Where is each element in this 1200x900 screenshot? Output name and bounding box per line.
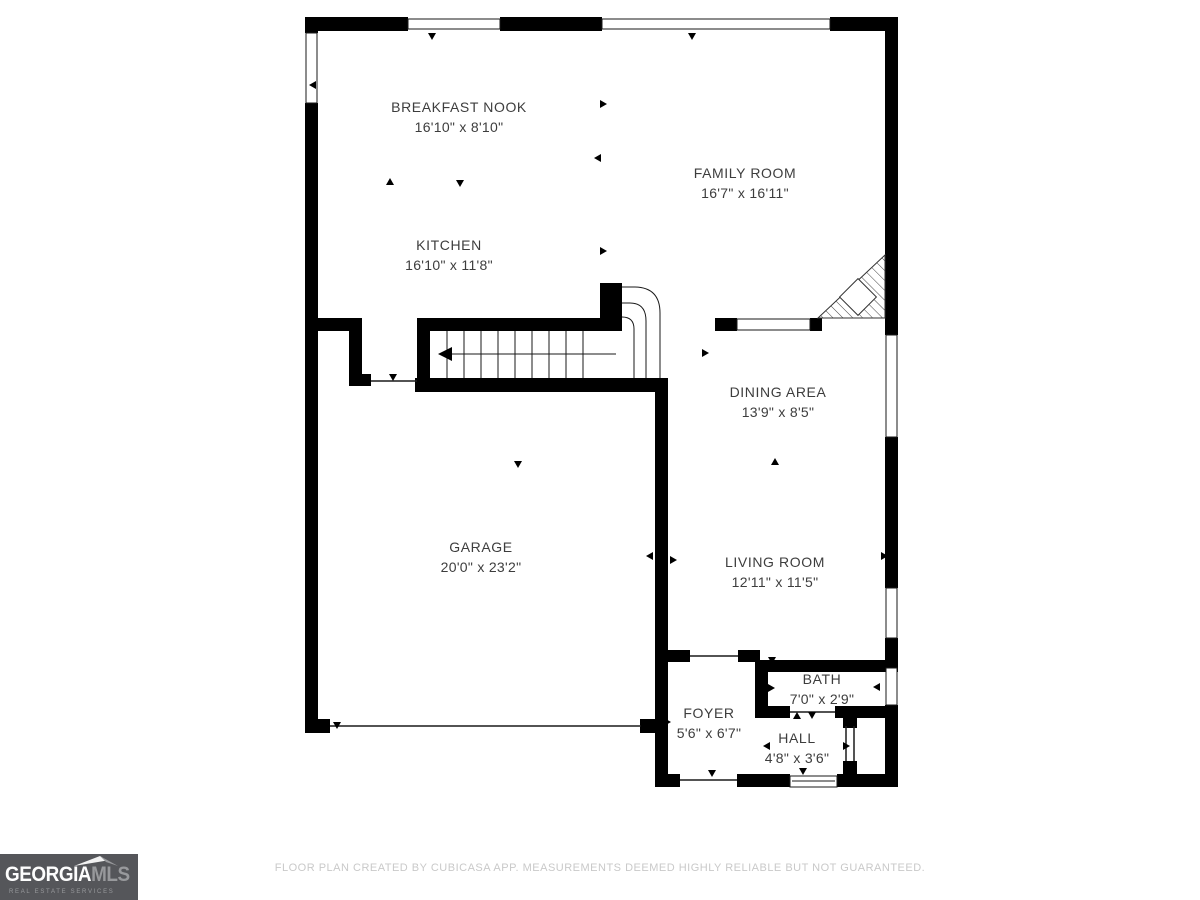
room-label-breakfast-nook: BREAKFAST NOOK 16'10" x 8'10" <box>391 99 527 136</box>
room-label-living-room: LIVING ROOM 12'11" x 11'5" <box>725 554 825 591</box>
room-label-dining-area: DINING AREA 13'9" x 8'5" <box>730 384 827 421</box>
logo-brand-secondary: MLS <box>91 863 130 886</box>
room-name: BREAKFAST NOOK <box>391 99 527 116</box>
logo-brand-primary: GEORGIA <box>5 863 91 886</box>
fireplace <box>818 255 885 318</box>
georgia-mls-logo: GEORGIAMLS REAL ESTATE SERVICES <box>0 854 138 900</box>
stair-direction-arrow <box>438 347 452 361</box>
room-name: GARAGE <box>441 539 522 556</box>
room-label-foyer: FOYER 5'6" x 6'7" <box>677 705 742 742</box>
room-dimensions: 5'6" x 6'7" <box>677 725 742 742</box>
room-label-kitchen: KITCHEN 16'10" x 11'8" <box>405 237 493 274</box>
logo-wordmark: GEORGIAMLS <box>5 865 130 887</box>
room-name: FOYER <box>677 705 742 722</box>
room-dimensions: 16'10" x 8'10" <box>391 119 527 136</box>
room-name: BATH <box>790 671 855 688</box>
staircase <box>438 287 660 378</box>
footer-disclaimer: FLOOR PLAN CREATED BY CUBICASA APP. MEAS… <box>0 862 1200 874</box>
room-label-hall: HALL 4'8" x 3'6" <box>765 730 830 767</box>
room-name: FAMILY ROOM <box>694 165 797 182</box>
floor-plan-page: { "rooms": [ {"name": "BREAKFAST NOOK", … <box>0 0 1200 900</box>
logo-tagline: REAL ESTATE SERVICES <box>9 889 114 895</box>
room-name: HALL <box>765 730 830 747</box>
room-label-bath: BATH 7'0" x 2'9" <box>790 671 855 708</box>
room-dimensions: 16'10" x 11'8" <box>405 257 493 274</box>
floor-plan-drawing <box>0 0 1200 900</box>
room-dimensions: 13'9" x 8'5" <box>730 404 827 421</box>
room-label-family-room: FAMILY ROOM 16'7" x 16'11" <box>694 165 797 202</box>
room-dimensions: 7'0" x 2'9" <box>790 691 855 708</box>
room-dimensions: 4'8" x 3'6" <box>765 750 830 767</box>
room-dimensions: 16'7" x 16'11" <box>694 185 797 202</box>
room-label-garage: GARAGE 20'0" x 23'2" <box>441 539 522 576</box>
room-name: KITCHEN <box>405 237 493 254</box>
room-dimensions: 20'0" x 23'2" <box>441 559 522 576</box>
room-dimensions: 12'11" x 11'5" <box>725 574 825 591</box>
room-name: DINING AREA <box>730 384 827 401</box>
room-name: LIVING ROOM <box>725 554 825 571</box>
